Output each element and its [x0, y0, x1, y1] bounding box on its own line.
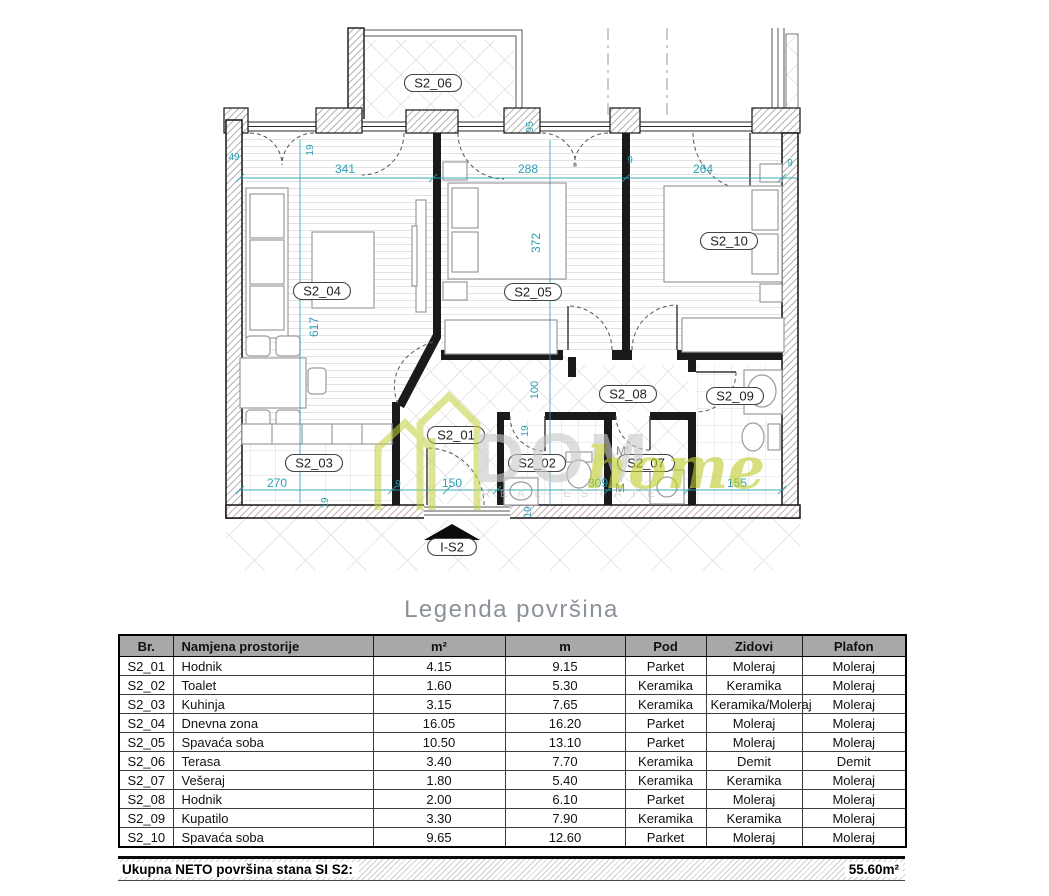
dimension-text: 9	[627, 155, 633, 166]
dimension-text: 100	[529, 381, 541, 399]
table-cell-m2: 9.65	[373, 828, 505, 848]
table-cell-pod: Parket	[625, 714, 706, 733]
room-label-text: S2_06	[414, 76, 452, 91]
table-cell-m2: 3.15	[373, 695, 505, 714]
table-cell-br: S2_04	[119, 714, 173, 733]
table-cell-pod: Keramika	[625, 676, 706, 695]
watermark-tagline: REAL ESTATE	[482, 488, 665, 500]
table-row: S2_09Kupatilo3.307.90KeramikaKeramikaMol…	[119, 809, 906, 828]
room-label-text: S2_08	[609, 387, 647, 402]
table-cell-namjena: Hodnik	[173, 657, 373, 676]
table-cell-br: S2_08	[119, 790, 173, 809]
table-cell-plafon: Moleraj	[802, 809, 906, 828]
construction-lines	[608, 28, 667, 120]
table-cell-zidovi: Keramika/Moleraj	[706, 695, 802, 714]
table-cell-pod: Parket	[625, 828, 706, 848]
table-cell-br: S2_01	[119, 657, 173, 676]
floor-plan: 3412882644999199537261710019270915030915…	[0, 0, 1049, 592]
table-row: S2_05Spavaća soba10.5013.10ParketMoleraj…	[119, 733, 906, 752]
legend-col-header: Zidovi	[706, 635, 802, 657]
table-cell-zidovi: Moleraj	[706, 828, 802, 848]
table-cell-pod: Keramika	[625, 695, 706, 714]
table-cell-br: S2_09	[119, 809, 173, 828]
room-label-i-s2: I-S2	[428, 539, 477, 556]
table-row: S2_02Toalet1.605.30KeramikaKeramikaMoler…	[119, 676, 906, 695]
room-label-s2_04: S2_04	[294, 283, 351, 300]
dimension-text: 270	[267, 476, 287, 490]
table-cell-namjena: Hodnik	[173, 790, 373, 809]
dimension-text: 150	[442, 476, 462, 490]
table-row: S2_10Spavaća soba9.6512.60ParketMolerajM…	[119, 828, 906, 848]
table-row: S2_06Terasa3.407.70KeramikaDemitDemit	[119, 752, 906, 771]
table-cell-pod: Keramika	[625, 809, 706, 828]
table-cell-m2: 2.00	[373, 790, 505, 809]
table-cell-m: 7.70	[505, 752, 625, 771]
table-cell-pod: Keramika	[625, 752, 706, 771]
table-cell-m: 7.65	[505, 695, 625, 714]
floorplan-page: 3412882644999199537261710019270915030915…	[0, 0, 1049, 896]
table-cell-br: S2_03	[119, 695, 173, 714]
room-label-text: I-S2	[440, 540, 464, 555]
room-label-text: S2_09	[716, 389, 754, 404]
dimension-text: 264	[693, 162, 713, 176]
dimension-text: 19	[320, 497, 331, 509]
table-cell-m: 5.30	[505, 676, 625, 695]
table-cell-pod: Keramika	[625, 771, 706, 790]
table-cell-namjena: Spavaća soba	[173, 828, 373, 848]
table-cell-zidovi: Keramika	[706, 676, 802, 695]
table-cell-namjena: Dnevna zona	[173, 714, 373, 733]
room-label-text: S2_03	[295, 456, 333, 471]
dimension-text: 9	[395, 479, 401, 490]
legend-col-header: Br.	[119, 635, 173, 657]
table-cell-m: 7.90	[505, 809, 625, 828]
table-cell-zidovi: Moleraj	[706, 714, 802, 733]
room-label-text: S2_01	[437, 428, 475, 443]
table-cell-m2: 10.50	[373, 733, 505, 752]
dimension-text: 19	[523, 506, 534, 518]
table-cell-namjena: Kuhinja	[173, 695, 373, 714]
table-cell-m: 12.60	[505, 828, 625, 848]
table-cell-zidovi: Moleraj	[706, 733, 802, 752]
table-cell-m2: 3.40	[373, 752, 505, 771]
table-cell-m: 13.10	[505, 733, 625, 752]
table-cell-m: 9.15	[505, 657, 625, 676]
table-cell-plafon: Moleraj	[802, 714, 906, 733]
table-cell-m: 6.10	[505, 790, 625, 809]
room-label-s2_03: S2_03	[286, 455, 343, 472]
table-cell-zidovi: Moleraj	[706, 657, 802, 676]
room-label-text: S2_05	[514, 285, 552, 300]
table-row: S2_03Kuhinja3.157.65KeramikaKeramika/Mol…	[119, 695, 906, 714]
legend-table: Br.Namjena prostorijem²mPodZidoviPlafon …	[118, 634, 907, 848]
table-cell-plafon: Moleraj	[802, 695, 906, 714]
room-label-s2_08: S2_08	[600, 386, 657, 403]
legend-col-header: m²	[373, 635, 505, 657]
legend-col-header: Namjena prostorije	[173, 635, 373, 657]
table-cell-plafon: Moleraj	[802, 790, 906, 809]
table-cell-namjena: Vešeraj	[173, 771, 373, 790]
table-cell-m2: 1.80	[373, 771, 505, 790]
table-cell-namjena: Toalet	[173, 676, 373, 695]
table-cell-namjena: Spavaća soba	[173, 733, 373, 752]
table-row: S2_07Vešeraj1.805.40KeramikaKeramikaMole…	[119, 771, 906, 790]
table-cell-m2: 3.30	[373, 809, 505, 828]
table-cell-plafon: Moleraj	[802, 676, 906, 695]
dimension-text: 49	[228, 152, 240, 163]
table-cell-zidovi: Keramika	[706, 771, 802, 790]
table-cell-zidovi: Demit	[706, 752, 802, 771]
table-cell-pod: Parket	[625, 790, 706, 809]
dimension-text: 95	[525, 121, 536, 133]
table-cell-m2: 1.60	[373, 676, 505, 695]
table-cell-br: S2_05	[119, 733, 173, 752]
table-cell-plafon: Moleraj	[802, 771, 906, 790]
total-label: Ukupna NETO površina stana SI S2:	[118, 862, 359, 877]
table-cell-m2: 16.05	[373, 714, 505, 733]
table-cell-br: S2_07	[119, 771, 173, 790]
table-cell-m2: 4.15	[373, 657, 505, 676]
room-label-s2_06: S2_06	[405, 75, 462, 92]
table-cell-zidovi: Keramika	[706, 809, 802, 828]
legend-col-header: m	[505, 635, 625, 657]
table-cell-plafon: Moleraj	[802, 733, 906, 752]
table-row: S2_04Dnevna zona16.0516.20ParketMolerajM…	[119, 714, 906, 733]
table-row: S2_08Hodnik2.006.10ParketMolerajMoleraj	[119, 790, 906, 809]
room-label-s2_05: S2_05	[505, 284, 562, 301]
table-cell-br: S2_02	[119, 676, 173, 695]
room-label-s2_10: S2_10	[701, 233, 758, 250]
dimension-text: 9	[787, 158, 793, 169]
dimension-text: 617	[307, 317, 321, 337]
neighbor-balcony	[772, 28, 798, 120]
table-cell-m: 5.40	[505, 771, 625, 790]
room-label-s2_09: S2_09	[707, 388, 764, 405]
dimension-text: 288	[518, 162, 538, 176]
legend-title: Legenda površina	[118, 596, 905, 624]
table-cell-br: S2_10	[119, 828, 173, 848]
dimension-text: 341	[335, 162, 355, 176]
room-label-text: S2_10	[710, 234, 748, 249]
table-cell-plafon: Moleraj	[802, 657, 906, 676]
table-cell-namjena: Terasa	[173, 752, 373, 771]
table-cell-plafon: Moleraj	[802, 828, 906, 848]
total-value: 55.60m²	[845, 862, 903, 877]
legend-col-header: Plafon	[802, 635, 906, 657]
legend-total-row: Ukupna NETO površina stana SI S2: 55.60m…	[118, 856, 905, 881]
table-cell-pod: Parket	[625, 733, 706, 752]
table-cell-zidovi: Moleraj	[706, 790, 802, 809]
room-label-text: S2_04	[303, 284, 341, 299]
legend-header-row: Br.Namjena prostorijem²mPodZidoviPlafon	[119, 635, 906, 657]
table-cell-namjena: Kupatilo	[173, 809, 373, 828]
table-row: S2_01Hodnik4.159.15ParketMolerajMoleraj	[119, 657, 906, 676]
table-cell-br: S2_06	[119, 752, 173, 771]
table-cell-pod: Parket	[625, 657, 706, 676]
table-cell-m: 16.20	[505, 714, 625, 733]
dimension-text: 372	[529, 233, 543, 253]
legend-col-header: Pod	[625, 635, 706, 657]
dimension-text: 19	[305, 144, 316, 156]
table-cell-plafon: Demit	[802, 752, 906, 771]
